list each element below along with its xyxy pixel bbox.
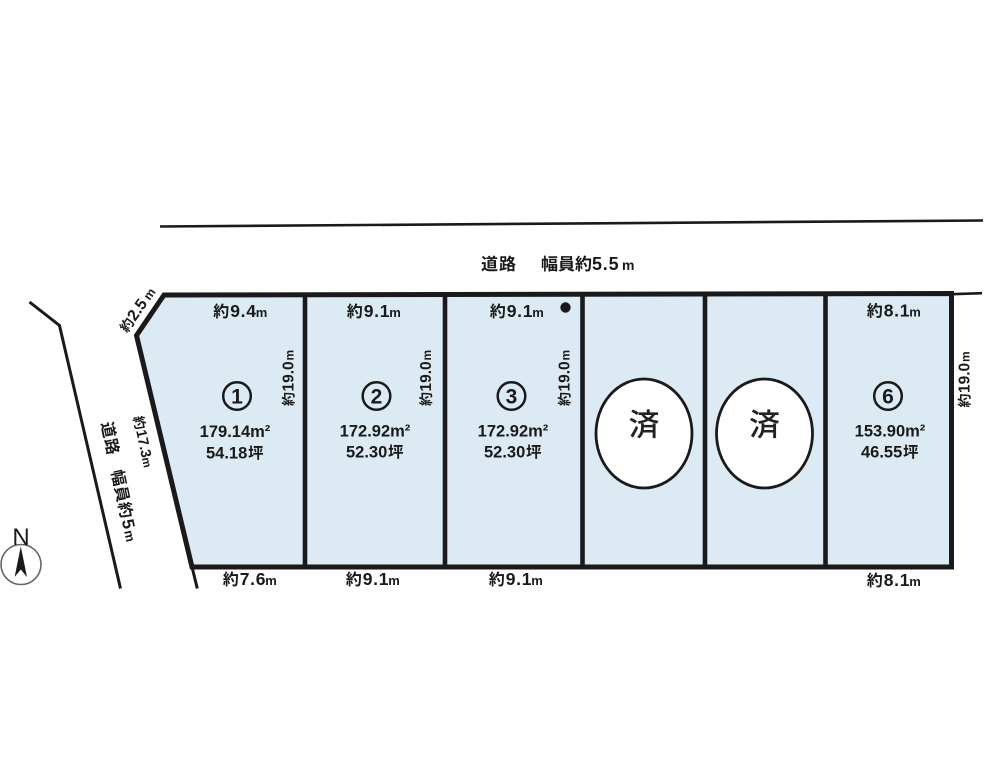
svg-text:6: 6 [882, 386, 894, 409]
svg-text:m: m [388, 573, 400, 588]
svg-text:m: m [909, 574, 921, 589]
svg-text:19.0: 19.0 [281, 361, 298, 391]
svg-text:m: m [256, 305, 268, 320]
svg-text:9.1: 9.1 [507, 301, 533, 321]
svg-text:19.0: 19.0 [957, 363, 974, 393]
svg-text:52.30: 52.30 [484, 444, 525, 462]
svg-text:1: 1 [231, 386, 243, 409]
svg-text:52.30: 52.30 [346, 444, 387, 462]
svg-text:54.18: 54.18 [206, 445, 247, 463]
svg-text:m: m [389, 305, 401, 320]
svg-text:m: m [559, 350, 573, 361]
svg-text:9.1: 9.1 [364, 301, 390, 321]
svg-text:m: m [420, 350, 434, 361]
svg-text:172.92m²: 172.92m² [478, 423, 549, 441]
svg-text:7.6: 7.6 [240, 569, 266, 589]
svg-text:N: N [12, 524, 29, 551]
svg-text:19.0: 19.0 [557, 361, 574, 391]
svg-text:m: m [959, 351, 973, 362]
svg-text:m: m [283, 350, 297, 361]
svg-text:m: m [909, 305, 921, 320]
svg-text:2: 2 [371, 386, 383, 409]
svg-text:5.5: 5.5 [592, 254, 619, 274]
svg-text:3: 3 [506, 386, 518, 409]
svg-text:8.1: 8.1 [884, 570, 910, 590]
svg-text:9.1: 9.1 [506, 569, 532, 589]
svg-text:8.1: 8.1 [884, 301, 910, 321]
svg-text:153.90m²: 153.90m² [855, 423, 926, 441]
svg-text:m: m [531, 573, 543, 588]
svg-text:19.0: 19.0 [418, 361, 435, 391]
svg-text:m: m [265, 573, 277, 588]
svg-text:9.4: 9.4 [230, 301, 256, 321]
svg-text:9.1: 9.1 [363, 569, 389, 589]
svg-text:m: m [622, 257, 634, 273]
svg-text:179.14m²: 179.14m² [200, 423, 271, 441]
svg-text:m: m [532, 305, 544, 320]
svg-text:46.55: 46.55 [861, 444, 902, 462]
svg-text:172.92m²: 172.92m² [340, 423, 411, 441]
